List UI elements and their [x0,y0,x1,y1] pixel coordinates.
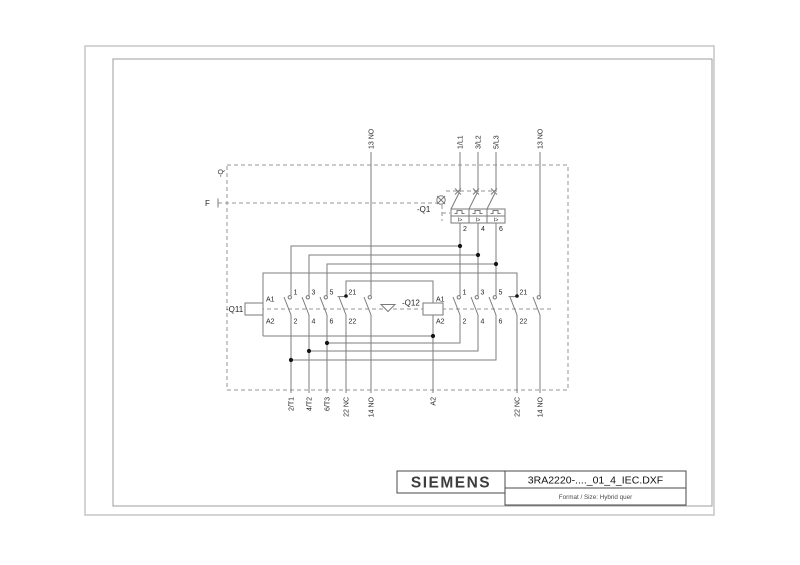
q12-terminal: 4 [481,319,485,326]
drawing-filename: 3RA2220-...._01_4_IEC.DXF [528,475,663,487]
q11-name-label: -Q11 [226,305,244,314]
enclosure-label: -Q [218,169,225,177]
q12-terminal: 3 [481,290,485,297]
q11-pole-contact [320,296,328,315]
q11-terminal: 4 [312,319,316,326]
q11-pole-contact [302,296,310,315]
wiring [263,152,540,393]
q12-nc-aux-contact [509,297,519,315]
trip-label: F [205,199,210,208]
q11-terminal: 5 [330,290,334,297]
output-terminal-2t1: 2/T1 [289,397,296,411]
coil-common-a2-wire [263,315,433,393]
q11-coil-a1: A1 [266,297,275,304]
q11-terminal: 3 [312,290,316,297]
q12-coil-a2: A2 [436,319,445,326]
q12-pole-contact [489,296,497,315]
breaker-name-label: -Q1 [417,205,431,214]
mechanical-interlock-icon [381,305,395,312]
enclosure-boundary [218,165,568,390]
breaker-load-terminal: 4 [481,226,485,233]
q12-coil [423,303,443,315]
breaker-load-wires [460,223,496,296]
magnetic-release-symbol: I> [476,218,481,224]
supply-wires [460,152,496,192]
coil-terminal-a2: A2 [431,397,438,406]
breaker-actuator-linkage [442,205,450,221]
contactor-q11 [245,296,372,315]
magnetic-release-symbol: I> [494,218,499,224]
q11-terminal: 6 [330,319,334,326]
schematic-canvas: I> I> I> -Q F -Q1 1/L1 3/L2 [0,0,800,565]
q12-terminal: 6 [499,319,503,326]
q12-terminal: 5 [499,290,503,297]
breaker-load-terminal: 6 [499,226,503,233]
q11-no-aux-contact [364,296,372,315]
aux-terminal-22nc-q11: 22 NC [344,397,351,417]
supply-terminal-label-5l3: 5/L3 [494,135,501,149]
q12-terminal: 1 [463,290,467,297]
q11-terminal: 2 [294,319,298,326]
breaker-q1: I> I> I> [437,189,505,224]
aux-terminal-14no-q12: 14 NO [538,396,545,417]
aux-no-top-label-q11: 13 NO [369,128,376,149]
interlock-wire-q11-to-q12coil [346,281,433,303]
q11-nc-aux-contact [338,297,348,315]
q12-output-wires [291,315,517,393]
magnetic-release-symbol: I> [458,218,463,224]
q12-pole-contact [453,296,461,315]
q12-no-aux-contact [533,296,541,315]
q11-nc-terminal: 22 [349,319,357,326]
q12-nc-terminal: 22 [520,319,528,326]
output-terminal-6t3: 6/T3 [325,397,332,411]
supply-terminal-label-1l1: 1/L1 [458,135,465,149]
q12-nc-terminal: 21 [520,290,528,297]
q12-pole-contact [471,296,479,315]
q11-pole-contact [284,296,292,315]
q11-coil-a2: A2 [266,319,275,326]
aux-terminal-22nc-q12: 22 NC [515,397,522,417]
q12-coil-a1: A1 [436,297,445,304]
inner-border [113,59,712,506]
brand-logo-text: SIEMENS [411,475,491,492]
format-info: Format / Size: Hybrid quer [559,494,633,501]
q11-output-wires [291,315,346,393]
schematic-sheet: I> I> I> -Q F -Q1 1/L1 3/L2 [0,0,800,565]
q11-feed-wires [291,246,496,296]
supply-terminal-label-3l2: 3/L2 [476,135,483,149]
q12-name-label: -Q12 [402,299,420,308]
q11-terminal: 1 [294,290,298,297]
aux-no-top-label-q12: 13 NO [538,128,545,149]
q11-coil [245,303,263,315]
breaker-load-terminal: 2 [463,226,467,233]
aux-terminal-14no-q11: 14 NO [369,396,376,417]
q12-terminal: 2 [463,319,467,326]
q11-nc-terminal: 21 [349,290,357,297]
title-block: SIEMENS 3RA2220-...._01_4_IEC.DXF Format… [397,471,686,505]
output-terminal-4t2: 4/T2 [307,397,314,411]
